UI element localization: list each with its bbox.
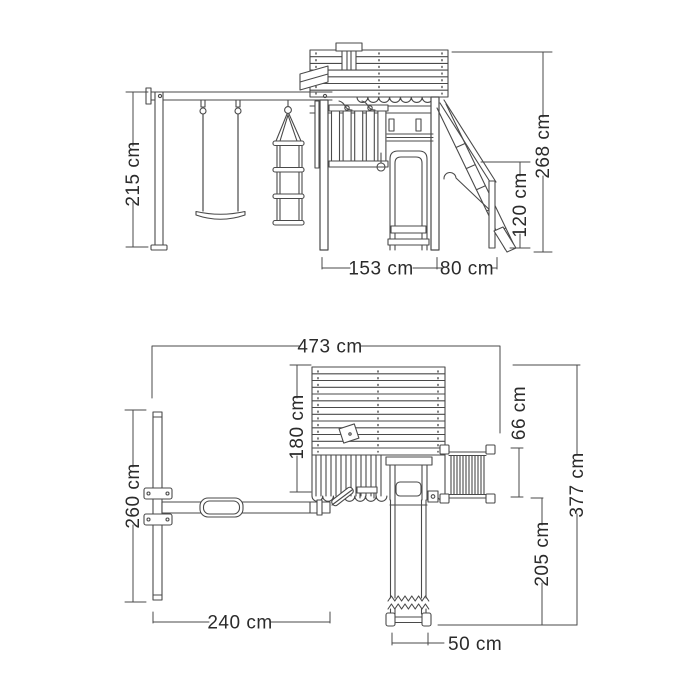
rope-ladder <box>273 100 304 225</box>
platform-deck-plan <box>312 455 445 507</box>
dimension-label-tower-width: 153 cm <box>348 259 413 280</box>
dimension-slide-length: 205 cm <box>531 498 553 625</box>
dimension-label-tower-depth: 180 cm <box>287 394 308 459</box>
roof-plan <box>312 367 445 455</box>
dimension-label-swing-frame-depth: 260 cm <box>123 463 144 528</box>
dimension-stairs-width: 66 cm <box>509 386 530 497</box>
stairs-plan <box>440 445 495 503</box>
dimension-label-stairs-depth: 80 cm <box>440 259 494 280</box>
side-view: 215 cm 268 cm 120 cm 153 cm 80 cm <box>123 43 554 280</box>
dimension-label-slide-width: 50 cm <box>448 634 502 655</box>
slide-plan <box>386 500 431 626</box>
dimension-tower-depth: 180 cm <box>287 365 311 492</box>
plan-view: 473 cm 180 cm 66 cm 377 cm 205 cm <box>123 337 588 656</box>
swing-seat-plan <box>200 498 243 517</box>
playset-technical-drawing: 215 cm 268 cm 120 cm 153 cm 80 cm <box>0 0 700 700</box>
dimension-label-stairs-height: 120 cm <box>510 172 531 237</box>
slide <box>388 151 429 250</box>
dimension-label-total-width: 473 cm <box>297 337 362 358</box>
dimension-stairs-depth: 80 cm <box>437 258 497 280</box>
dimension-label-total-height: 268 cm <box>533 113 554 178</box>
scallop-trim <box>357 97 433 102</box>
swing-seat <box>196 100 245 219</box>
climbing-wall <box>329 101 388 167</box>
slide-mount-bracket <box>428 491 438 502</box>
dimension-tower-width: 153 cm <box>322 258 437 280</box>
diagram-canvas: 215 cm 268 cm 120 cm 153 cm 80 cm <box>0 0 700 700</box>
dimension-swing-beam-length: 240 cm <box>153 612 330 634</box>
playhouse-wall <box>310 50 448 97</box>
access-stairs <box>437 100 516 252</box>
dimension-label-stairs-width: 66 cm <box>509 386 530 440</box>
dimension-label-slide-length: 205 cm <box>532 521 553 586</box>
dimension-label-swing-frame-height: 215 cm <box>123 141 144 206</box>
dimension-slide-width: 50 cm <box>392 633 502 655</box>
dimension-swing-frame-depth: 260 cm <box>123 410 146 602</box>
dimension-label-swing-beam-length: 240 cm <box>207 613 272 634</box>
dimension-swing-frame-height: 215 cm <box>123 92 148 247</box>
dimension-label-total-depth: 377 cm <box>567 452 588 517</box>
grab-handle-plan <box>357 487 377 498</box>
